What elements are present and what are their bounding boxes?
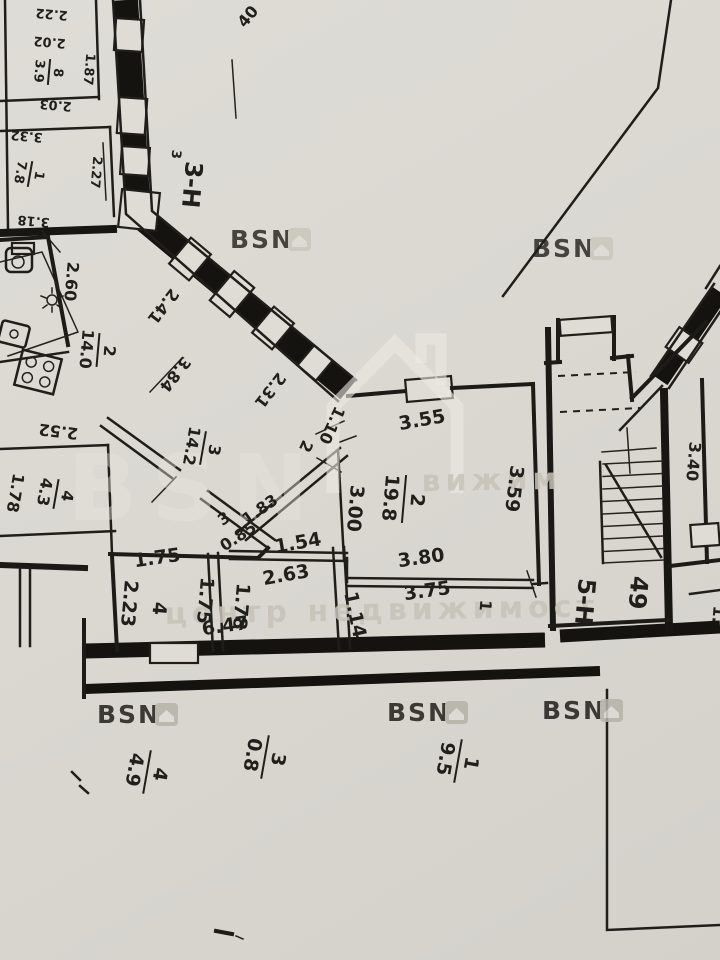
dim-178-left: 1.78 — [3, 472, 29, 514]
stray-marks — [72, 772, 243, 939]
svg-text:1: 1 — [30, 170, 46, 182]
apartment-number: 49 — [623, 575, 654, 611]
svg-text:2: 2 — [100, 345, 120, 358]
svg-text:BSN: BSN — [387, 698, 451, 727]
dim-384: 3.84 — [156, 353, 195, 396]
svg-text:4: 4 — [148, 766, 172, 783]
watermark-fragment: вижим — [421, 462, 562, 499]
dim-252: 2.52 — [38, 420, 80, 444]
svg-text:1: 1 — [459, 755, 483, 772]
room-label-kitchen: 2 14.0 — [75, 329, 120, 372]
dim-1: 1 — [476, 599, 496, 612]
svg-text:3: 3 — [266, 751, 290, 768]
dim-318: 3.18 — [17, 212, 50, 230]
room-label-c3: 3 0.8 — [238, 731, 293, 783]
room-label-4b: 4 — [147, 601, 170, 616]
svg-text:14.0: 14.0 — [75, 329, 97, 370]
lower-right-outline — [607, 690, 720, 930]
svg-text:19.8: 19.8 — [377, 473, 403, 522]
facade-wall-top-left — [113, 0, 356, 401]
svg-text:3.9: 3.9 — [30, 59, 47, 83]
svg-text:7.8: 7.8 — [10, 160, 29, 185]
svg-text:4.3: 4.3 — [33, 476, 57, 507]
svg-text:8: 8 — [50, 68, 66, 78]
dim-263: 2.63 — [261, 560, 311, 590]
room-label-8: 8 3.9 — [30, 57, 66, 86]
dim-202: 2.02 — [33, 33, 66, 51]
watermark-logo: BSN — [542, 696, 623, 725]
dim-231: 2.31 — [251, 369, 290, 412]
watermark-logo: BSN — [387, 698, 468, 727]
dim-203: 2.03 — [39, 96, 72, 114]
dim-332: 3.32 — [10, 127, 43, 145]
svg-text:BSN: BSN — [230, 225, 294, 254]
dim-222: 2.22 — [35, 5, 68, 23]
watermark-logo: BSN — [532, 234, 613, 263]
dim-355: 3.55 — [397, 405, 447, 435]
floor-plan-drawing: BSN вижим центр недвижимост BSN BSN BSN … — [0, 0, 720, 960]
dim-380: 3.80 — [396, 544, 445, 572]
dim-241: 2.41 — [144, 285, 183, 328]
dim-300: 3.00 — [342, 484, 368, 533]
sheet-number: 40 — [233, 2, 262, 31]
svg-text:0.8: 0.8 — [238, 736, 266, 773]
dim-260: 2.60 — [60, 261, 82, 302]
svg-text:4.9: 4.9 — [120, 751, 148, 788]
svg-text:BSN: BSN — [97, 700, 161, 729]
watermark-logo: BSN — [97, 700, 178, 729]
dim-187: 1.87 — [80, 53, 98, 86]
unit-3n-sup: 3 — [168, 149, 184, 159]
stairs — [600, 428, 663, 563]
room-label-c4: 4 4.9 — [120, 746, 175, 798]
watermark-logo: BSN — [230, 225, 311, 254]
svg-text:4: 4 — [57, 489, 78, 503]
unit-3n-label: 3-Н — [176, 160, 208, 209]
dim-340: 3.40 — [682, 441, 704, 482]
dim-175-top: 1.75 — [132, 544, 181, 572]
dim-227: 2.27 — [87, 156, 105, 189]
street-wall-bottom — [84, 620, 720, 697]
svg-text:BSN: BSN — [542, 696, 606, 725]
svg-text:9.5: 9.5 — [431, 740, 459, 777]
room-label-1-78: 1 7.8 — [10, 158, 48, 190]
floor-plan-scan: BSN вижим центр недвижимост BSN BSN BSN … — [0, 0, 720, 960]
room-label-c1: 1 9.5 — [431, 735, 486, 787]
unit-5n-label: 5-Н — [569, 577, 601, 626]
svg-text:2: 2 — [405, 493, 428, 508]
sink-icon — [0, 320, 30, 348]
right-side-walls — [670, 380, 720, 594]
svg-text:BSN: BSN — [532, 234, 596, 263]
dim-right-partial: 1. — [708, 605, 720, 624]
dim-223: 2.23 — [116, 579, 142, 628]
